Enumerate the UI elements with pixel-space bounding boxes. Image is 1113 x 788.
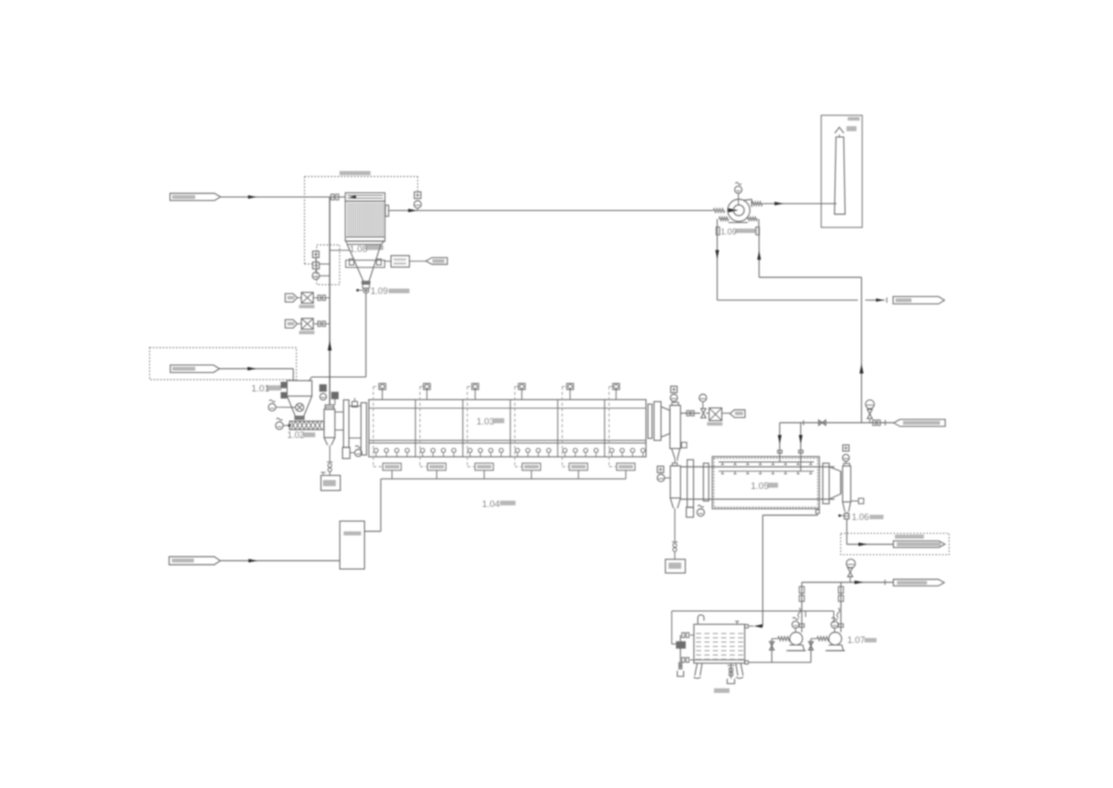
- svg-text:1.06: 1.06: [852, 512, 869, 522]
- svg-text:1.09: 1.09: [371, 286, 388, 296]
- svg-text:1.09: 1.09: [721, 227, 737, 236]
- svg-text:1.07: 1.07: [847, 635, 865, 645]
- svg-text:1.05: 1.05: [751, 481, 769, 491]
- svg-text:1.08: 1.08: [350, 244, 368, 254]
- svg-text:1.02: 1.02: [287, 430, 304, 440]
- svg-text:1.04: 1.04: [482, 499, 500, 509]
- svg-text:1.03: 1.03: [477, 417, 495, 427]
